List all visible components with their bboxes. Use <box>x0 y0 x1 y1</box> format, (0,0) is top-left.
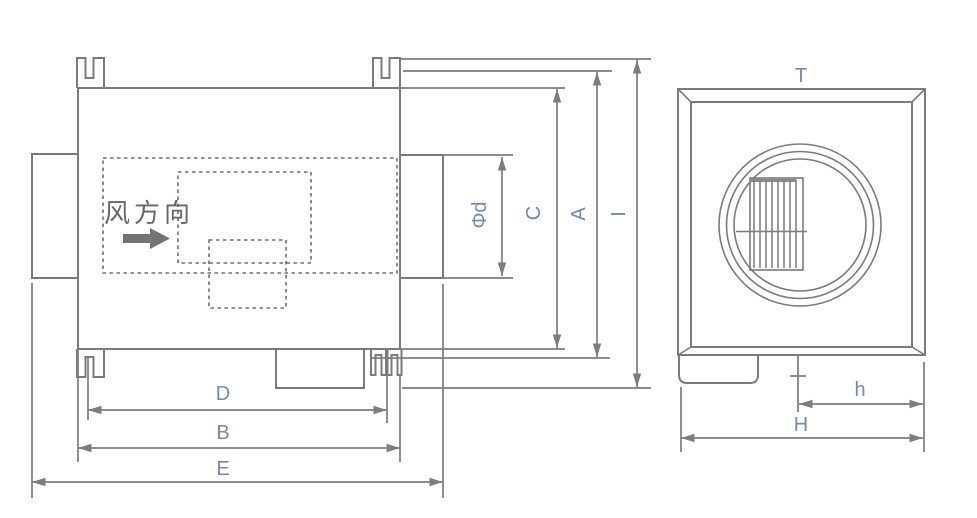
airflow-arrow-icon <box>123 228 170 249</box>
internal-outline-middle <box>178 172 311 263</box>
dimension-label-h-small: h <box>854 379 865 401</box>
dimension-label-a: A <box>568 207 590 221</box>
dimension-label-i: I <box>608 211 630 217</box>
front-view: T <box>678 65 925 452</box>
dimension-label-b: B <box>216 422 229 444</box>
dimension-label-e: E <box>216 458 229 480</box>
internal-outline-small <box>209 240 286 308</box>
bottom-foot-tab <box>679 355 758 383</box>
front-view-label-t: T <box>795 65 807 87</box>
mounting-bracket-top-left <box>77 58 104 88</box>
grille-frame <box>750 178 803 270</box>
frame-chamfer-top-left <box>678 89 691 102</box>
junction-box <box>276 349 364 388</box>
dimension-label-d: D <box>216 383 230 405</box>
frame-chamfer-top-right <box>912 89 925 102</box>
frame-outer <box>678 89 925 355</box>
dimension-label-phi-d: Φd <box>469 201 491 228</box>
airflow-direction-label: 风方向 <box>104 199 194 229</box>
fan-unit-dimension-drawing: 风方向 Φd C A I D B E <box>0 0 977 518</box>
duct-circle-middle <box>727 152 874 299</box>
duct-circle-outer <box>719 144 881 306</box>
outlet-duct <box>400 155 443 278</box>
frame-inner <box>691 102 912 347</box>
frame-chamfer-bottom-right <box>912 347 925 355</box>
frame-chamfer-bottom-left <box>678 347 691 355</box>
mounting-bracket-bottom-right-1 <box>371 349 386 375</box>
grille-top-bar <box>750 178 796 182</box>
mounting-bracket-bottom-right-2 <box>388 349 402 375</box>
impeller-grille <box>736 178 807 270</box>
dimension-label-c: C <box>523 206 545 220</box>
inlet-flange <box>32 154 78 278</box>
dimension-label-h-large: H <box>794 414 808 436</box>
side-view: 风方向 Φd C A I D B E <box>32 58 651 498</box>
drawing-canvas: 风方向 Φd C A I D B E <box>0 0 977 518</box>
mounting-bracket-top-right <box>373 58 400 88</box>
mounting-bracket-bottom-left <box>77 349 104 377</box>
